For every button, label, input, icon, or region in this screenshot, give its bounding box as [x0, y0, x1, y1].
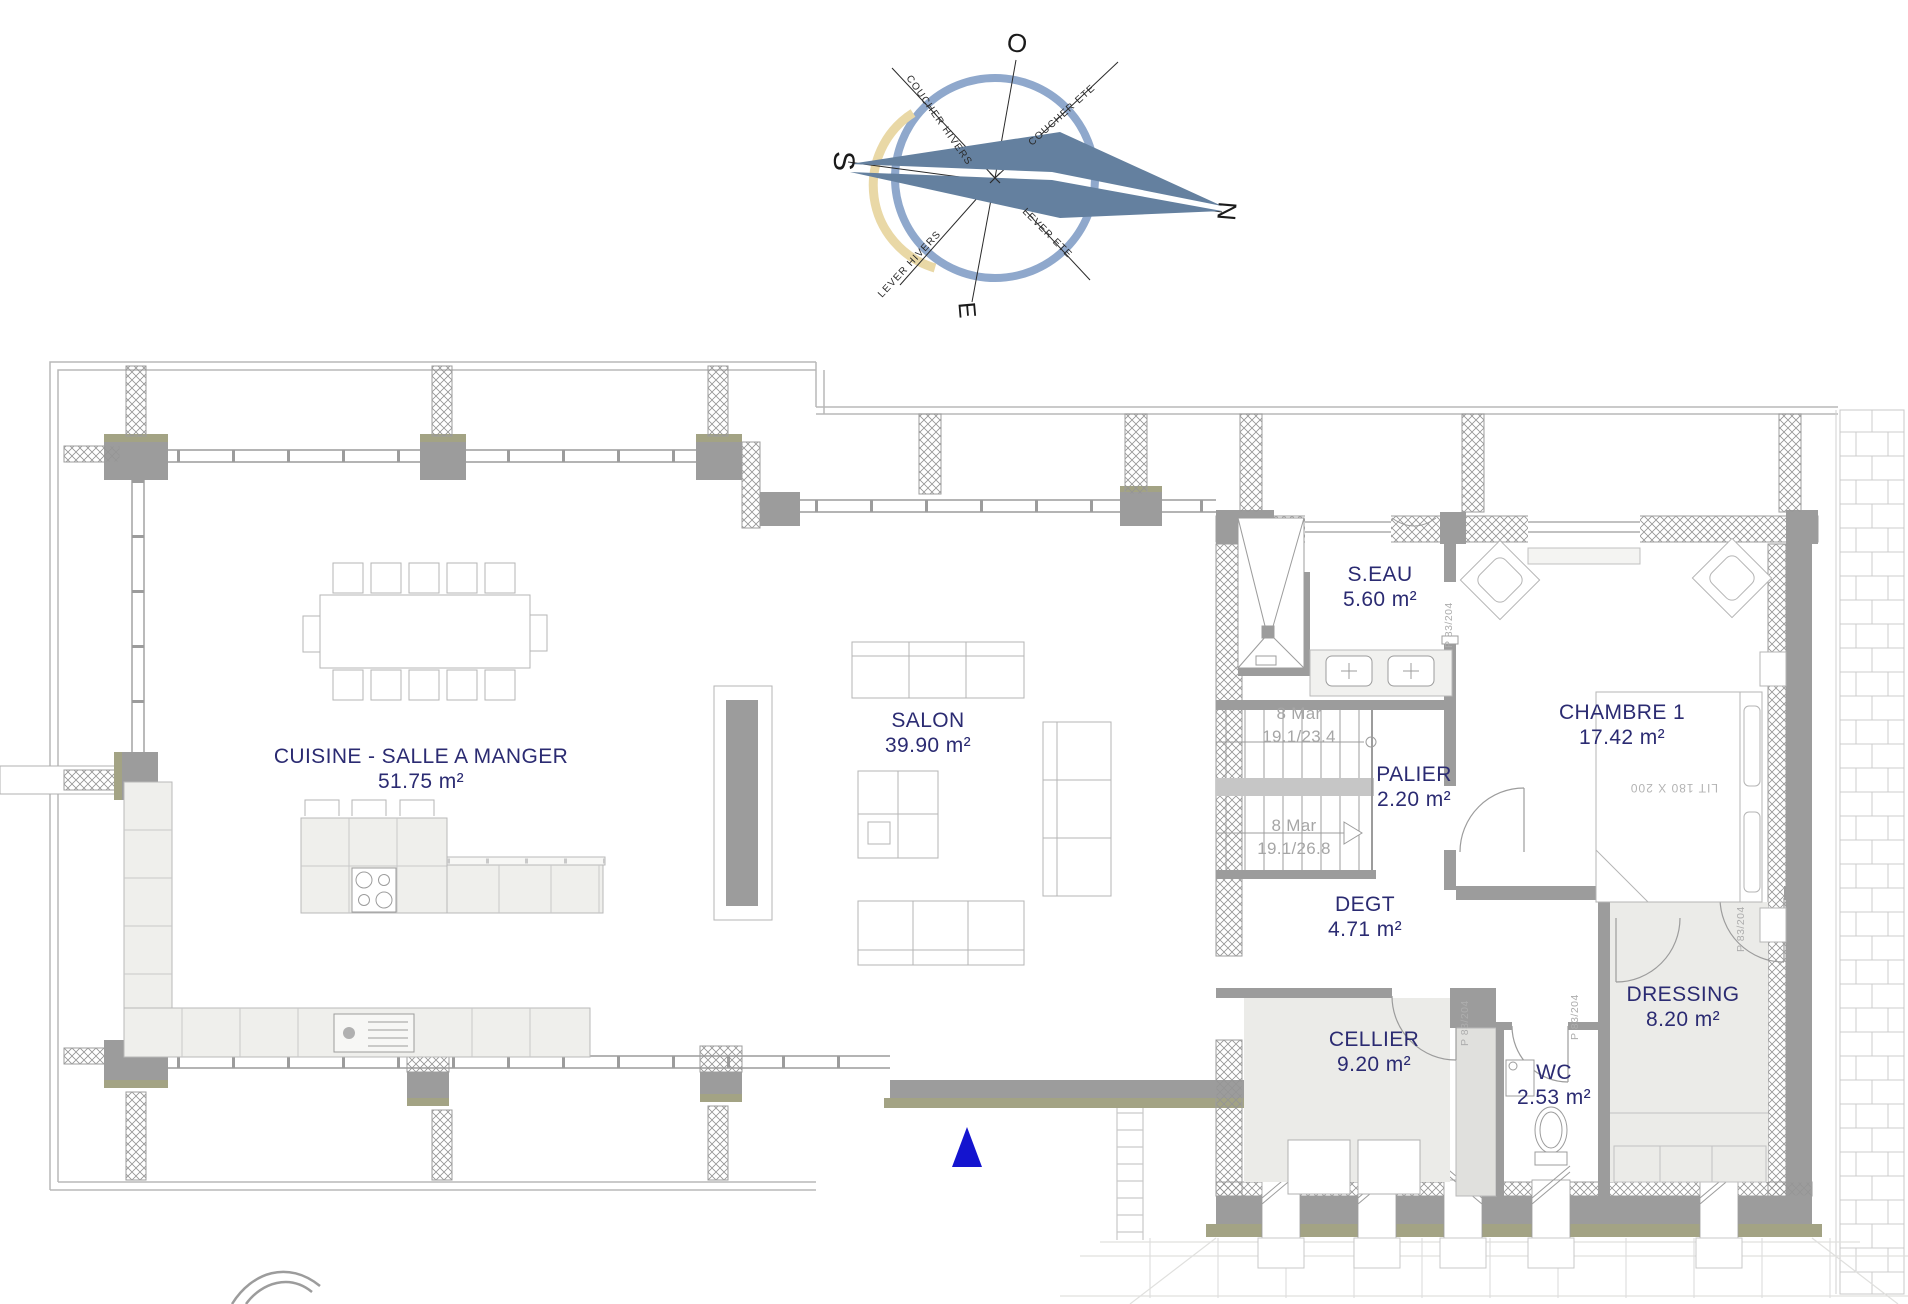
- stool: [352, 800, 386, 816]
- room-name: WC: [1517, 1060, 1591, 1085]
- room-name: CUISINE - SALLE A MANGER: [274, 744, 568, 769]
- coffee-table: [858, 771, 938, 858]
- door-size-label: P 83/204: [1735, 906, 1747, 952]
- bed-size-label: LIT 180 X 200: [1630, 781, 1718, 795]
- door-size-label: P 83/204: [1443, 602, 1455, 648]
- floor-plan-page: P 83/204 P 83/204 P 83/204 P 83/204 LIT …: [0, 0, 1908, 1304]
- room-area: 8.20 m²: [1627, 1007, 1740, 1032]
- sofa-bottom: [858, 901, 1024, 965]
- chair: [409, 670, 439, 700]
- stairs-dims: 19.1/26.8: [1257, 837, 1331, 860]
- room-label-cellier: CELLIER 9.20 m²: [1329, 1027, 1419, 1077]
- room-label-seau: S.EAU 5.60 m²: [1343, 562, 1417, 612]
- vanity: [1310, 650, 1452, 696]
- door-size-label: P 83/204: [1459, 1000, 1471, 1046]
- room-name: DRESSING: [1627, 982, 1740, 1007]
- room-label-chambre: CHAMBRE 1 17.42 m²: [1559, 700, 1685, 750]
- room-area: 17.42 m²: [1559, 725, 1685, 750]
- room-name: PALIER: [1376, 762, 1452, 787]
- armchair: [1692, 538, 1771, 617]
- cardinal-n: N: [1211, 200, 1243, 221]
- room-name: SALON: [885, 708, 971, 733]
- entrance-marker: [952, 1127, 982, 1167]
- room-area: 39.90 m²: [885, 733, 971, 758]
- shower: [1238, 518, 1304, 668]
- kitchen-casework: [124, 782, 605, 1057]
- salon-bottom-wall: [884, 1080, 1252, 1108]
- cardinal-s: S: [827, 151, 860, 171]
- chair: [333, 670, 363, 700]
- room-area: 2.20 m²: [1376, 787, 1452, 812]
- chair: [371, 670, 401, 700]
- room-label-wc: WC 2.53 m²: [1517, 1060, 1591, 1110]
- room-label-salon: SALON 39.90 m²: [885, 708, 971, 758]
- chair: [447, 563, 477, 593]
- toilet: [1535, 1107, 1567, 1165]
- stairs-lower-label: 8 Mar 19.1/26.8: [1257, 814, 1331, 860]
- sofa-top: [852, 642, 1024, 698]
- room-area: 9.20 m²: [1329, 1052, 1419, 1077]
- tv-unit: [714, 686, 772, 920]
- corner-squiggle: [232, 1272, 320, 1304]
- salon-furniture: [714, 642, 1111, 965]
- room-area: 51.75 m²: [274, 769, 568, 794]
- room-area: 5.60 m²: [1343, 587, 1417, 612]
- stairs-steps: 8 Mar: [1257, 814, 1331, 837]
- chair: [447, 670, 477, 700]
- stairs-dims: 19.1/23.4: [1262, 725, 1336, 748]
- dining-table: [320, 595, 530, 668]
- chair: [333, 563, 363, 593]
- chair: [409, 563, 439, 593]
- kitchen-sink: [334, 1014, 414, 1052]
- door-size-label: P 83/204: [1569, 994, 1581, 1040]
- stool: [400, 800, 434, 816]
- roof-edge-ladder: [1117, 1100, 1143, 1240]
- dining-set: [303, 563, 547, 700]
- chair: [303, 616, 320, 652]
- chair: [485, 563, 515, 593]
- room-label-degt: DEGT 4.71 m²: [1328, 892, 1402, 942]
- stairs-steps: 8 Mar: [1262, 702, 1336, 725]
- cardinal-e: E: [952, 301, 980, 319]
- room-area: 2.53 m²: [1517, 1085, 1591, 1110]
- chair: [485, 670, 515, 700]
- chair: [371, 563, 401, 593]
- salon-top-wall: [760, 414, 1216, 526]
- room-name: CHAMBRE 1: [1559, 700, 1685, 725]
- room-name: DEGT: [1328, 892, 1402, 917]
- room-label-cuisine: CUISINE - SALLE A MANGER 51.75 m²: [274, 744, 568, 794]
- room-name: S.EAU: [1343, 562, 1417, 587]
- compass-rose: O S N E COUCHER HIVERS COUCHER ETE LEVER…: [827, 27, 1243, 319]
- nightstand: [1760, 908, 1786, 942]
- stool: [305, 800, 339, 816]
- roof-gable-brick-band: [1836, 410, 1904, 1294]
- chambre-door: [1460, 788, 1524, 852]
- cardinal-o: O: [1005, 27, 1029, 60]
- stairs-upper-label: 8 Mar 19.1/23.4: [1262, 702, 1336, 748]
- nightstand: [1760, 652, 1786, 686]
- cooktop: [352, 868, 396, 912]
- room-area: 4.71 m²: [1328, 917, 1402, 942]
- room-label-palier: PALIER 2.20 m²: [1376, 762, 1452, 812]
- room-label-dressing: DRESSING 8.20 m²: [1627, 982, 1740, 1032]
- floor-plan-drawing: P 83/204 P 83/204 P 83/204 P 83/204 LIT …: [0, 0, 1908, 1304]
- sofa-right: [1043, 722, 1111, 896]
- room-name: CELLIER: [1329, 1027, 1419, 1052]
- chair: [530, 615, 547, 651]
- compass-cardinals: O S N E: [827, 27, 1243, 319]
